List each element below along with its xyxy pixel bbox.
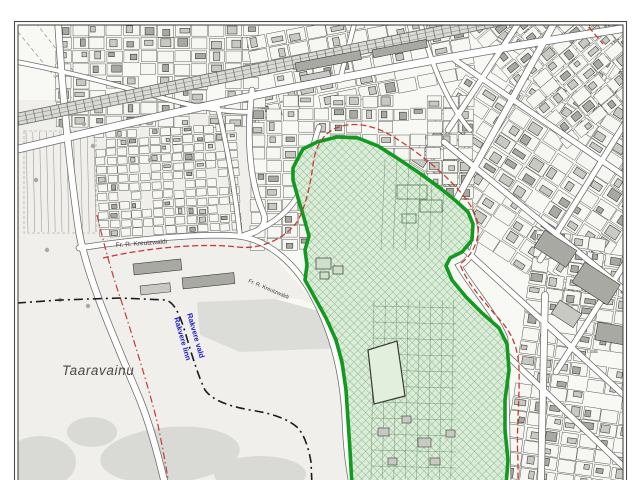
cadastral-map-canvas: Taaravainu Rakvere linn Rakvere vald Fr.… <box>0 0 640 480</box>
region-label: Taaravainu <box>62 363 134 378</box>
map-viewport: Taaravainu Rakvere linn Rakvere vald Fr.… <box>0 0 640 480</box>
street-label-small: Tr. aia <box>584 349 598 355</box>
map-content: Taaravainu Rakvere linn Rakvere vald Fr.… <box>4 0 640 480</box>
